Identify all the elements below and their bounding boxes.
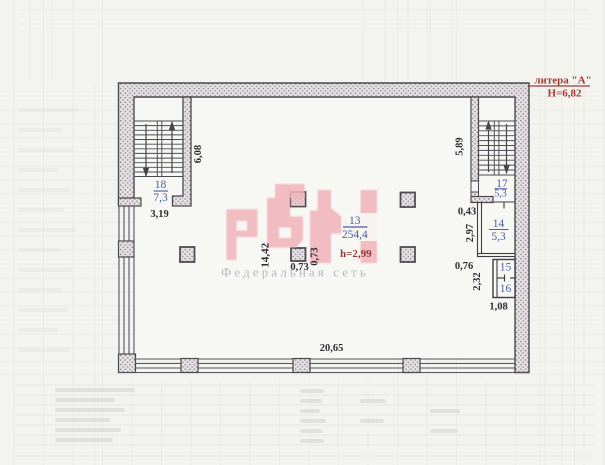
svg-text:2,32: 2,32	[472, 272, 483, 290]
svg-text:15: 15	[500, 262, 512, 274]
svg-text:5,3: 5,3	[494, 189, 507, 200]
svg-text:литера "А": литера "А"	[534, 75, 591, 87]
svg-text:Н=6,82: Н=6,82	[547, 88, 582, 100]
svg-text:20,65: 20,65	[320, 343, 344, 354]
svg-text:5,3: 5,3	[491, 231, 506, 243]
svg-text:13: 13	[349, 215, 361, 227]
svg-text:0,76: 0,76	[455, 261, 473, 272]
svg-text:254,4: 254,4	[342, 229, 368, 241]
svg-text:1,08: 1,08	[489, 302, 507, 313]
svg-text:18: 18	[155, 179, 167, 191]
svg-text:3,19: 3,19	[150, 209, 168, 220]
svg-text:5,89: 5,89	[454, 137, 465, 155]
svg-text:0,43: 0,43	[458, 207, 476, 218]
svg-text:6,08: 6,08	[193, 145, 204, 163]
svg-text:7,3: 7,3	[153, 192, 168, 204]
svg-text:14: 14	[493, 218, 505, 230]
svg-text:h=2,99: h=2,99	[340, 248, 372, 260]
svg-text:16: 16	[500, 283, 512, 295]
svg-text:2,97: 2,97	[465, 224, 476, 242]
svg-text:14,42: 14,42	[260, 242, 272, 267]
svg-text:0,73: 0,73	[290, 262, 308, 273]
svg-text:0,73: 0,73	[309, 247, 320, 265]
